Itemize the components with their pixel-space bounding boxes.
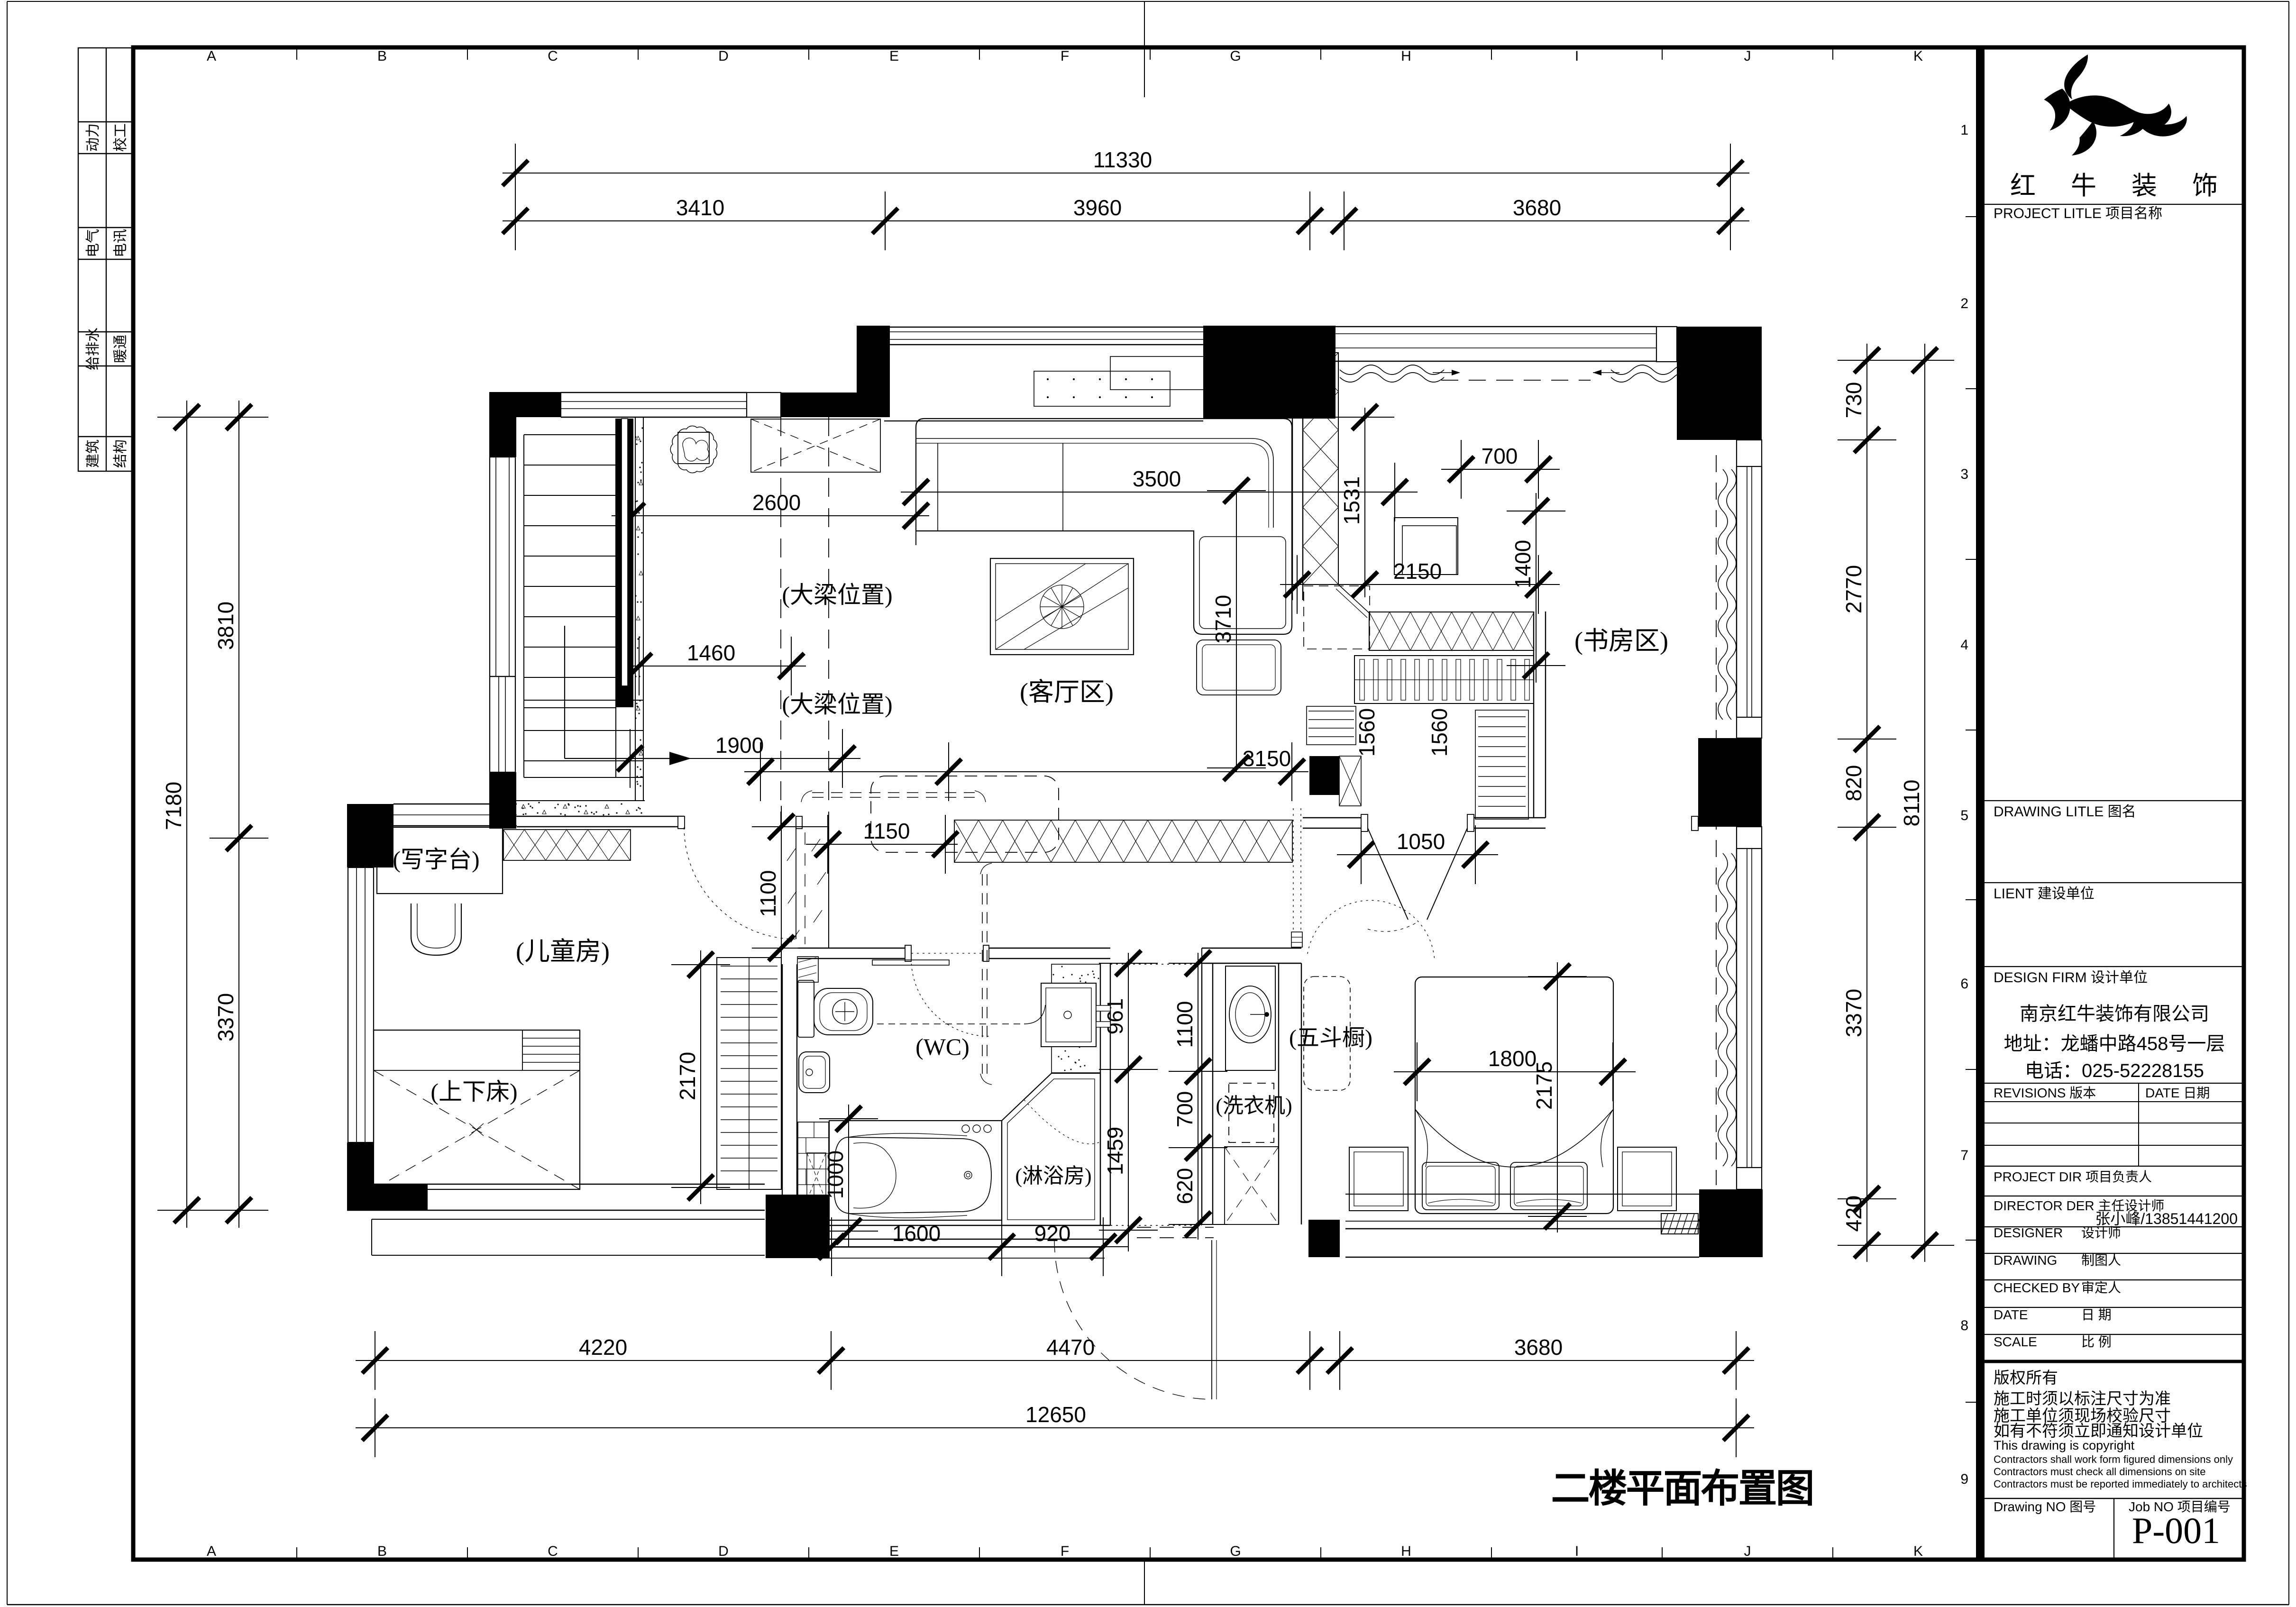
svg-text:(大梁位置): (大梁位置) [782, 691, 892, 718]
svg-text:暖通: 暖通 [113, 335, 128, 363]
svg-text:(WC): (WC) [915, 1033, 970, 1060]
svg-text:3: 3 [1960, 466, 1968, 482]
svg-text:3810: 3810 [213, 602, 238, 650]
svg-text:2600: 2600 [752, 490, 801, 515]
svg-text:G: G [1230, 48, 1241, 64]
svg-text:C: C [548, 48, 558, 64]
svg-text:2170: 2170 [675, 1052, 700, 1100]
svg-text:4220: 4220 [579, 1335, 627, 1360]
svg-text:4: 4 [1960, 637, 1968, 653]
svg-text:F: F [1061, 1543, 1069, 1559]
svg-text:1100: 1100 [1172, 1001, 1197, 1048]
svg-text:校工: 校工 [113, 123, 128, 152]
svg-text:3680: 3680 [1514, 1335, 1563, 1360]
svg-text:CHECKED BY: CHECKED BY [1994, 1280, 2080, 1295]
svg-text:1150: 1150 [863, 819, 910, 843]
svg-text:REVISIONS 版本: REVISIONS 版本 [1994, 1086, 2096, 1100]
svg-text:(洗衣机): (洗衣机) [1216, 1094, 1292, 1117]
svg-text:LIENT 建设单位: LIENT 建设单位 [1994, 886, 2095, 902]
svg-text:H: H [1401, 1543, 1411, 1559]
svg-text:制图人: 制图人 [2081, 1253, 2121, 1268]
svg-text:(上下床): (上下床) [430, 1078, 517, 1105]
svg-text:SCALE: SCALE [1994, 1334, 2037, 1349]
svg-text:DRAWING LITLE 图名: DRAWING LITLE 图名 [1994, 804, 2136, 820]
svg-text:给排水: 给排水 [85, 328, 101, 370]
svg-text:版权所有: 版权所有 [1994, 1369, 2058, 1387]
svg-text:Drawing NO 图号: Drawing NO 图号 [1994, 1499, 2096, 1514]
svg-text:1560: 1560 [1354, 708, 1379, 757]
svg-text:B: B [377, 1543, 387, 1559]
svg-text:7180: 7180 [161, 782, 186, 830]
svg-text:G: G [1230, 1543, 1241, 1559]
svg-text:A: A [207, 1543, 216, 1559]
svg-text:DRAWING: DRAWING [1994, 1253, 2057, 1268]
svg-text:1800: 1800 [1488, 1046, 1537, 1071]
svg-text:4470: 4470 [1046, 1335, 1095, 1360]
svg-text:DATE 日期: DATE 日期 [2145, 1086, 2210, 1100]
svg-text:结构: 结构 [113, 439, 128, 468]
svg-text:(淋浴房): (淋浴房) [1015, 1164, 1091, 1187]
svg-text:红牛装饰: 红牛装饰 [2010, 172, 2253, 200]
svg-text:K: K [1913, 1543, 1923, 1559]
svg-text:DATE: DATE [1994, 1307, 2028, 1322]
svg-text:建筑: 建筑 [85, 439, 101, 468]
svg-text:二楼平面布置图: 二楼平面布置图 [1551, 1467, 1813, 1510]
svg-text:(大梁位置): (大梁位置) [782, 582, 892, 608]
svg-text:DESIGN FIRM 设计单位: DESIGN FIRM 设计单位 [1994, 970, 2148, 986]
svg-text:12650: 12650 [1025, 1402, 1086, 1427]
svg-text:8: 8 [1960, 1318, 1968, 1333]
svg-text:I: I [1575, 1543, 1579, 1559]
svg-text:Contractors must be reported i: Contractors must be reported immediately… [1994, 1478, 2247, 1490]
svg-text:This drawing is copyright: This drawing is copyright [1994, 1438, 2135, 1452]
svg-text:电话：025-52228155: 电话：025-52228155 [2025, 1060, 2204, 1081]
svg-text:(书房区): (书房区) [1574, 627, 1668, 655]
svg-text:E: E [889, 1543, 899, 1559]
svg-text:比 例: 比 例 [2081, 1334, 2112, 1349]
svg-text:2175: 2175 [1532, 1061, 1556, 1110]
svg-text:730: 730 [1841, 382, 1866, 419]
svg-text:8110: 8110 [1899, 780, 1924, 827]
svg-text:C: C [548, 1543, 558, 1559]
svg-text:3960: 3960 [1073, 195, 1122, 220]
svg-text:820: 820 [1841, 765, 1866, 802]
svg-text:(儿童房): (儿童房) [516, 937, 610, 966]
svg-text:动力: 动力 [85, 123, 101, 152]
svg-text:11330: 11330 [1093, 147, 1153, 172]
svg-text:D: D [718, 1543, 729, 1559]
svg-text:700: 700 [1482, 444, 1518, 468]
svg-text:3370: 3370 [213, 993, 238, 1041]
svg-text:1900: 1900 [715, 733, 764, 758]
svg-text:3680: 3680 [1513, 195, 1561, 220]
svg-text:施工时须以标注尺寸为准: 施工时须以标注尺寸为准 [1994, 1390, 2171, 1408]
svg-text:3150: 3150 [1243, 746, 1291, 771]
svg-text:日 期: 日 期 [2081, 1307, 2112, 1322]
svg-text:南京红牛装饰有限公司: 南京红牛装饰有限公司 [2020, 1004, 2209, 1024]
svg-text:1460: 1460 [687, 640, 735, 665]
svg-text:3410: 3410 [676, 195, 724, 220]
svg-text:(写字台): (写字台) [393, 846, 479, 873]
svg-text:张小峰/13851441200: 张小峰/13851441200 [2095, 1210, 2238, 1227]
svg-text:E: E [889, 48, 899, 64]
svg-text:K: K [1913, 48, 1923, 64]
svg-text:DESIGNER: DESIGNER [1994, 1225, 2063, 1240]
svg-text:A: A [207, 48, 216, 64]
svg-text:(客厅区): (客厅区) [1020, 678, 1114, 706]
svg-text:D: D [718, 48, 729, 64]
svg-text:1560: 1560 [1427, 708, 1452, 757]
svg-text:电气: 电气 [85, 229, 101, 257]
svg-text:P-001: P-001 [2132, 1510, 2220, 1551]
svg-text:7: 7 [1960, 1148, 1968, 1163]
svg-text:设计师: 设计师 [2081, 1225, 2121, 1240]
svg-text:700: 700 [1172, 1091, 1197, 1128]
svg-text:3370: 3370 [1841, 989, 1866, 1037]
svg-text:H: H [1401, 48, 1411, 64]
svg-text:1400: 1400 [1510, 540, 1535, 588]
svg-text:F: F [1061, 48, 1069, 64]
svg-text:2770: 2770 [1841, 565, 1866, 613]
svg-text:1050: 1050 [1397, 829, 1445, 854]
svg-text:961: 961 [1103, 998, 1127, 1035]
svg-text:PROJECT LITLE 项目名称: PROJECT LITLE 项目名称 [1994, 206, 2162, 221]
svg-text:(五斗橱): (五斗橱) [1289, 1025, 1372, 1050]
svg-text:PROJECT DIR 项目负责人: PROJECT DIR 项目负责人 [1994, 1169, 2152, 1184]
svg-text:3500: 3500 [1133, 466, 1181, 491]
svg-text:2150: 2150 [1393, 559, 1442, 584]
svg-text:J: J [1744, 48, 1751, 64]
svg-text:Contractors shall work form fi: Contractors shall work form figured dime… [1994, 1453, 2233, 1465]
svg-text:420: 420 [1841, 1196, 1866, 1232]
svg-text:1: 1 [1960, 122, 1968, 138]
svg-text:审定人: 审定人 [2081, 1280, 2121, 1295]
svg-text:5: 5 [1960, 808, 1968, 823]
svg-text:3710: 3710 [1211, 595, 1235, 643]
svg-text:B: B [377, 48, 387, 64]
svg-text:1531: 1531 [1339, 476, 1364, 525]
svg-text:地址：龙蟠中路458号一层: 地址：龙蟠中路458号一层 [2004, 1033, 2225, 1054]
svg-text:9: 9 [1960, 1471, 1968, 1487]
svg-text:2: 2 [1960, 296, 1968, 311]
svg-text:620: 620 [1172, 1168, 1197, 1205]
svg-text:1000: 1000 [823, 1150, 848, 1199]
svg-text:1100: 1100 [756, 870, 780, 917]
svg-text:Contractors must check all dim: Contractors must check all dimensions on… [1994, 1466, 2206, 1478]
svg-text:I: I [1575, 48, 1579, 64]
svg-text:电讯: 电讯 [113, 229, 128, 257]
svg-text:1459: 1459 [1103, 1127, 1127, 1175]
svg-text:6: 6 [1960, 976, 1968, 992]
svg-text:J: J [1744, 1543, 1751, 1559]
svg-text:如有不符须立即通知设计单位: 如有不符须立即通知设计单位 [1994, 1422, 2203, 1440]
